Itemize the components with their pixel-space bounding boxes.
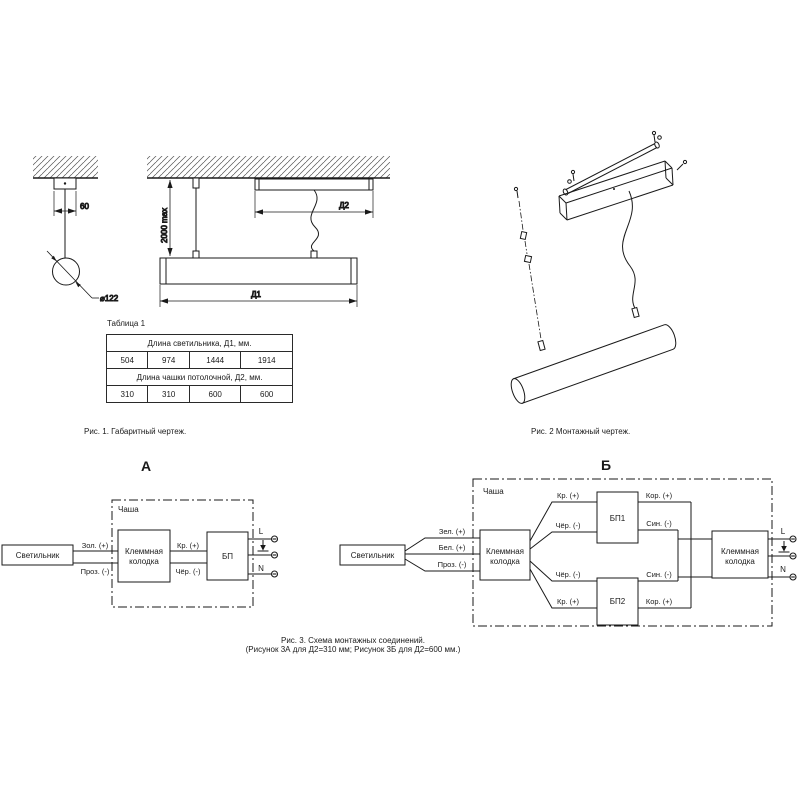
fig1-dimensional-drawing: 60 ⌀122 2000 max Д2 Д1 bbox=[33, 156, 390, 307]
psu2-label: БП2 bbox=[610, 597, 626, 606]
mains-l-label: L bbox=[781, 527, 786, 536]
terminal-ground bbox=[272, 552, 278, 558]
terminal-block1-label: Клеммная bbox=[486, 547, 524, 556]
psu2-out-minus-label: Син. (-) bbox=[646, 570, 672, 579]
ceiling-channel bbox=[559, 161, 673, 220]
psu1-in-minus-label: Чёр. (-) bbox=[555, 521, 581, 530]
cable-gripper bbox=[632, 308, 639, 318]
fig3-caption-line2: (Рисунок 3А для Д2=310 мм; Рисунок 3Б дл… bbox=[228, 645, 478, 654]
ring-icon bbox=[568, 180, 572, 184]
ring-icon bbox=[658, 136, 662, 140]
table-row: 504 974 1444 1914 bbox=[107, 352, 293, 369]
luminaire-label: Светильник bbox=[351, 551, 395, 560]
terminal-block2-label: колодка bbox=[725, 557, 755, 566]
terminal-block-label: колодка bbox=[129, 557, 159, 566]
d2-value: 600 bbox=[189, 386, 240, 403]
coiled-cable bbox=[311, 190, 319, 251]
psu1-out-minus-label: Син. (-) bbox=[646, 519, 672, 528]
table-row: 310 310 600 600 bbox=[107, 386, 293, 403]
cup-label: Чаша bbox=[118, 505, 139, 514]
cup-label: Чаша bbox=[483, 487, 504, 496]
table-row: Длина светильника, Д1, мм. bbox=[107, 335, 293, 352]
fig2-mounting-drawing bbox=[508, 131, 686, 405]
technical-drawing-page: 60 ⌀122 2000 max Д2 Д1 bbox=[0, 0, 800, 800]
terminal-ground bbox=[790, 553, 796, 559]
d1-value: 1914 bbox=[241, 352, 293, 369]
terminal-block1-label: колодка bbox=[490, 557, 520, 566]
psu2-in-plus-label: Кр. (+) bbox=[557, 597, 580, 606]
wire-label-transparent: Проз. (-) bbox=[438, 560, 467, 569]
diagram-a-title: А bbox=[141, 458, 151, 474]
terminal-n bbox=[790, 574, 796, 580]
d1-value: 504 bbox=[107, 352, 148, 369]
screw-icon bbox=[514, 131, 686, 198]
fig1-side-view bbox=[33, 156, 99, 298]
ceiling-hatch bbox=[33, 156, 98, 178]
diagram-a: А Светильник Чаша Клеммная колодка БП Зо… bbox=[2, 458, 278, 607]
dim-60-label: 60 bbox=[80, 202, 89, 211]
luminaire-tube bbox=[508, 323, 678, 405]
wire-label-green: Зел. (+) bbox=[439, 527, 466, 536]
wire-label-gold: Зол. (+) bbox=[82, 541, 109, 550]
mains-n-label: N bbox=[258, 564, 264, 573]
psu1-label: БП1 bbox=[610, 514, 626, 523]
d1-value: 974 bbox=[148, 352, 189, 369]
terminal-n bbox=[272, 571, 278, 577]
table-title: Таблица 1 bbox=[107, 319, 145, 328]
terminal-l bbox=[272, 536, 278, 542]
terminal-l bbox=[790, 536, 796, 542]
terminal-block2-label: Клеммная bbox=[721, 547, 759, 556]
table-row: Длина чашки потолочной, Д2, мм. bbox=[107, 369, 293, 386]
diameter-label: ⌀122 bbox=[100, 294, 119, 303]
psu1-out-plus-label: Кор. (+) bbox=[646, 491, 673, 500]
mains-n-label: N bbox=[780, 565, 786, 574]
psu1-in-plus-label: Кр. (+) bbox=[557, 491, 580, 500]
psu2-in-minus-label: Чёр. (-) bbox=[555, 570, 581, 579]
ground-icon bbox=[779, 541, 790, 552]
dim-d2-label: Д2 bbox=[339, 201, 349, 210]
fig1-caption: Рис. 1. Габаритный чертеж. bbox=[84, 427, 186, 436]
d1-value: 1444 bbox=[189, 352, 240, 369]
fig1-front-view bbox=[147, 156, 390, 307]
wire-label-red: Кр. (+) bbox=[177, 541, 200, 550]
d2-value: 310 bbox=[107, 386, 148, 403]
table-header-d2: Длина чашки потолочной, Д2, мм. bbox=[107, 369, 293, 386]
psu-label: БП bbox=[222, 552, 233, 561]
wire-label-white: Бел. (+) bbox=[439, 543, 466, 552]
ceiling-hatch bbox=[147, 156, 390, 178]
spec-table: Длина светильника, Д1, мм. 504 974 1444 … bbox=[106, 334, 293, 403]
terminal-block-box bbox=[118, 530, 170, 582]
diagram-b: Б Свети bbox=[340, 457, 796, 626]
table-header-d1: Длина светильника, Д1, мм. bbox=[107, 335, 293, 352]
luminaire-label: Светильник bbox=[16, 551, 60, 560]
fig3-caption-line1: Рис. 3. Схема монтажных соединений. bbox=[228, 636, 478, 645]
dim-d1-label: Д1 bbox=[251, 290, 261, 299]
ceiling-cup bbox=[255, 179, 373, 190]
wire-label-black: Чёр. (-) bbox=[175, 567, 201, 576]
cable-gripper bbox=[538, 341, 545, 351]
fig2-caption: Рис. 2 Монтажный чертеж. bbox=[531, 427, 630, 436]
terminal-block-label: Клеммная bbox=[125, 547, 163, 556]
fig3-caption: Рис. 3. Схема монтажных соединений. (Рис… bbox=[228, 636, 478, 654]
d2-value: 310 bbox=[148, 386, 189, 403]
wire-label-transparent: Проз. (-) bbox=[81, 567, 110, 576]
diagram-b-title: Б bbox=[601, 457, 611, 473]
psu2-out-plus-label: Кор. (+) bbox=[646, 597, 673, 606]
suspension-cable-left bbox=[519, 201, 541, 339]
d2-value: 600 bbox=[241, 386, 293, 403]
dim-2000-label: 2000 max bbox=[160, 208, 169, 243]
luminaire-body bbox=[160, 258, 357, 284]
power-cable bbox=[623, 191, 636, 310]
ground-icon bbox=[258, 540, 269, 551]
mains-l-label: L bbox=[259, 527, 264, 536]
